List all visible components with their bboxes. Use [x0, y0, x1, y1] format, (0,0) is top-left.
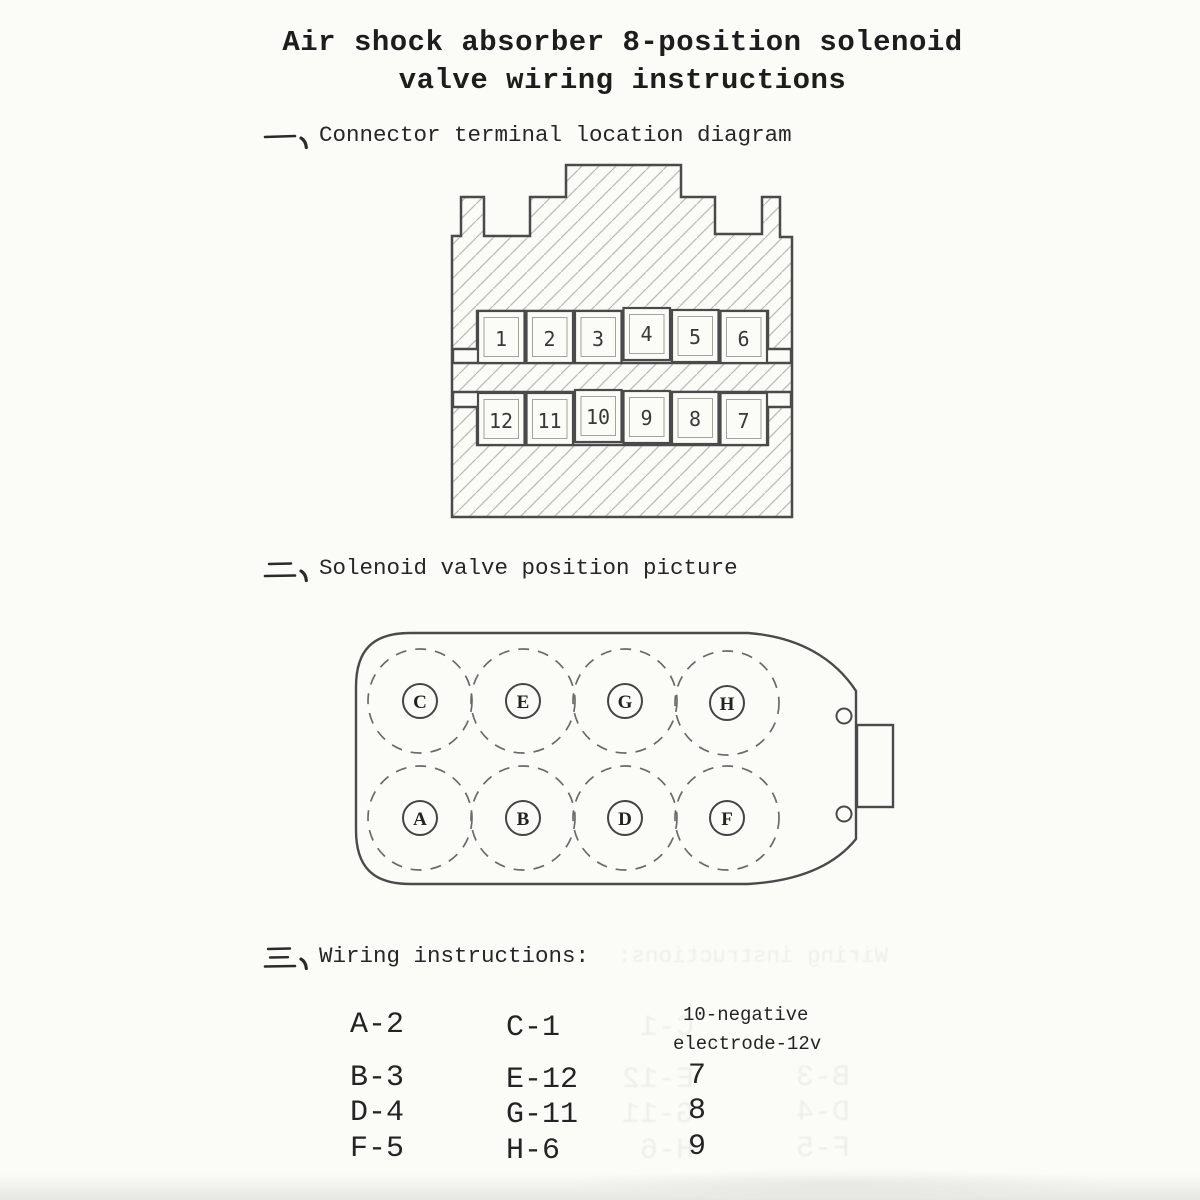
connector-terminal-diagram: 1 2 3 4 5 6 12 [436, 156, 800, 526]
section-marker-one-icon [262, 122, 312, 152]
terminal-box-5: 5 [672, 310, 719, 362]
svg-text:4: 4 [640, 322, 652, 346]
svg-text:C: C [413, 692, 427, 713]
svg-text:10: 10 [586, 405, 610, 429]
ghost-text: G-11 [622, 1100, 694, 1130]
terminal-box-3: 3 [575, 311, 622, 363]
page-title-line1: Air shock absorber 8-position solenoid [45, 24, 1200, 62]
terminal-box-6: 6 [721, 311, 768, 363]
photo-bottom-edge [0, 1174, 1200, 1200]
solenoid-valve-diagram: C E G H A B D [348, 620, 902, 894]
wiring-item: B-3 [350, 1063, 404, 1093]
wiring-item: E-12 [506, 1065, 578, 1095]
wiring-item: 8 [688, 1096, 706, 1126]
section2-heading: Solenoid valve position picture [262, 553, 738, 585]
terminal-box-1: 1 [478, 311, 525, 363]
valve-body-outline [356, 633, 856, 884]
ghost-text: B-3 [796, 1063, 850, 1093]
svg-text:3: 3 [592, 327, 604, 351]
svg-text:F: F [721, 809, 733, 830]
wiring-item: H-6 [506, 1136, 560, 1166]
svg-text:2: 2 [543, 327, 555, 351]
terminal-box-4: 4 [624, 308, 671, 360]
negative-electrode-note-line1: 10-negative [683, 1006, 808, 1025]
svg-text:7: 7 [737, 409, 749, 433]
wiring-item: G-11 [506, 1100, 578, 1130]
terminal-box-7: 7 [721, 393, 768, 445]
ghost-text: F-5 [796, 1134, 850, 1164]
svg-text:8: 8 [689, 407, 701, 431]
wiring-item: A-2 [350, 1010, 404, 1040]
svg-text:12: 12 [489, 409, 513, 433]
terminal-box-12: 12 [478, 393, 525, 445]
page-title-line2: valve wiring instructions [45, 62, 1200, 100]
svg-text:6: 6 [737, 327, 749, 351]
section1-heading: Connector terminal location diagram [262, 120, 792, 152]
negative-electrode-note-line2: electrode-12v [673, 1035, 821, 1054]
section-marker-three-icon [262, 943, 312, 973]
instruction-sheet: Air shock absorber 8-position solenoid v… [0, 0, 1200, 1200]
svg-text:E: E [517, 692, 530, 713]
svg-text:5: 5 [689, 325, 701, 349]
section2-heading-label: Solenoid valve position picture [319, 553, 738, 583]
wiring-item: 7 [688, 1061, 706, 1091]
valve-hole-bottom [837, 807, 852, 822]
ghost-text: Wiring instructions: [618, 941, 888, 971]
terminal-box-10: 10 [575, 390, 622, 442]
page-title: Air shock absorber 8-position solenoid v… [45, 24, 1200, 100]
terminal-box-11: 11 [527, 393, 574, 445]
section3-heading-label: Wiring instructions: [319, 941, 589, 971]
svg-text:G: G [618, 692, 633, 713]
terminal-box-2: 2 [527, 311, 574, 363]
section3-heading: Wiring instructions: [262, 941, 589, 973]
section-marker-two-icon [262, 555, 312, 585]
valve-right-tab [857, 725, 893, 807]
svg-text:1: 1 [495, 327, 507, 351]
ghost-text: H-6 [640, 1136, 694, 1166]
wiring-item: D-4 [350, 1098, 404, 1128]
ghost-text: D-4 [796, 1098, 850, 1128]
section1-heading-label: Connector terminal location diagram [319, 120, 792, 150]
svg-text:B: B [517, 809, 530, 830]
wiring-item: F-5 [350, 1134, 404, 1164]
terminal-box-8: 8 [672, 392, 719, 444]
svg-text:H: H [720, 694, 735, 715]
svg-text:11: 11 [537, 409, 561, 433]
svg-text:D: D [618, 809, 632, 830]
terminal-box-9: 9 [624, 391, 671, 443]
valve-hole-top [837, 709, 852, 724]
wiring-item: C-1 [506, 1013, 560, 1043]
svg-text:A: A [413, 809, 427, 830]
svg-text:9: 9 [640, 406, 652, 430]
wiring-item: 9 [688, 1132, 706, 1162]
ghost-text: E-12 [622, 1065, 694, 1095]
